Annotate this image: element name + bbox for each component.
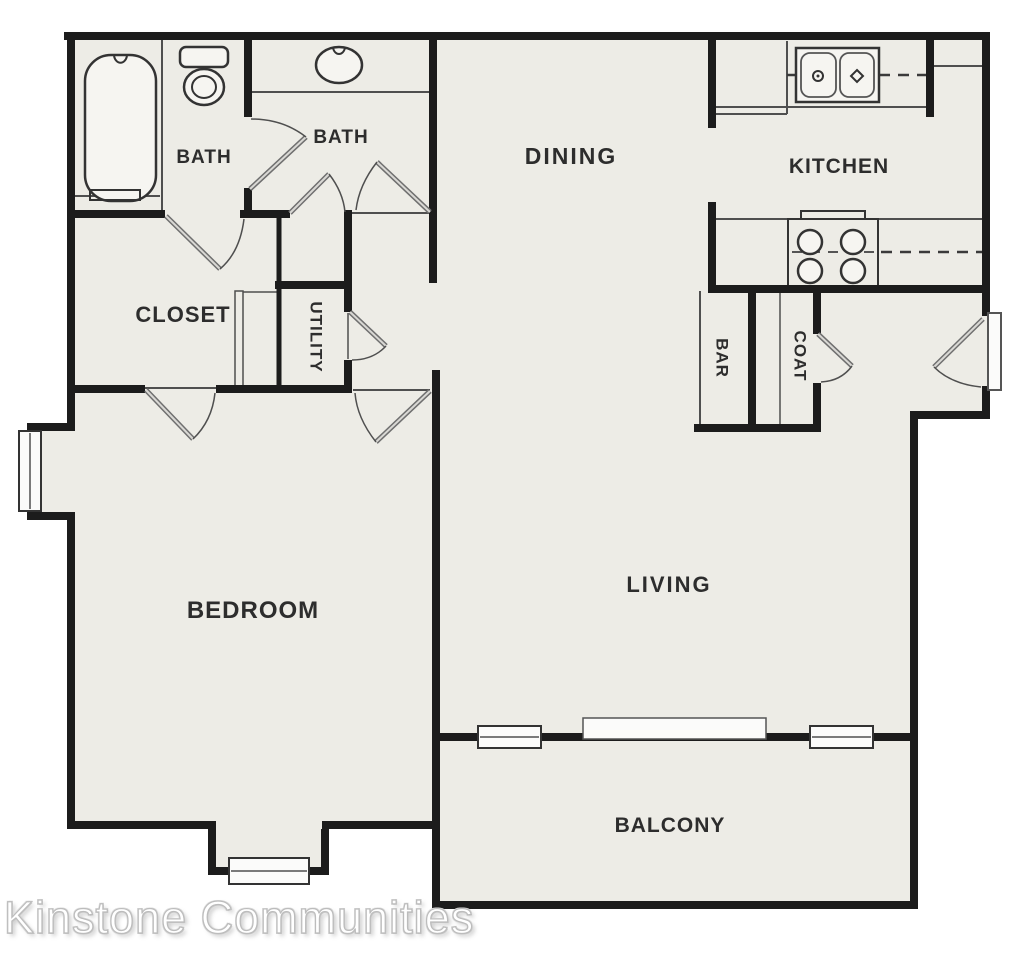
bedroom-bay-window (229, 858, 309, 884)
kitchen-label: KITCHEN (789, 155, 889, 178)
utility-label: UTILITY (307, 301, 326, 372)
bathtub-icon (85, 55, 156, 201)
kitchen-sink-icon (796, 48, 879, 102)
dining-label: DINING (525, 143, 618, 169)
living-label: LIVING (626, 572, 711, 597)
coat-label: COAT (791, 331, 810, 382)
bedroom-label: BEDROOM (187, 597, 319, 624)
closet-label: CLOSET (135, 302, 230, 327)
floor-plan: BATH BATH DINING KITCHEN CLOSET UTILITY … (0, 0, 1024, 958)
balcony-window-right (810, 726, 873, 748)
toilet-icon (180, 47, 228, 105)
balcony-window-left (478, 726, 541, 748)
left-bay-window (19, 431, 41, 511)
vanity-sink-icon (316, 47, 362, 83)
balcony-label: BALCONY (615, 814, 726, 837)
sliding-glass-door (583, 718, 766, 739)
bar-label: BAR (713, 338, 732, 378)
floor-plan-drawing: BATH BATH DINING KITCHEN CLOSET UTILITY … (0, 0, 1024, 958)
bath2-label: BATH (313, 127, 368, 148)
watermark: Kinstone Communities (4, 892, 474, 944)
bath1-label: BATH (176, 147, 231, 168)
